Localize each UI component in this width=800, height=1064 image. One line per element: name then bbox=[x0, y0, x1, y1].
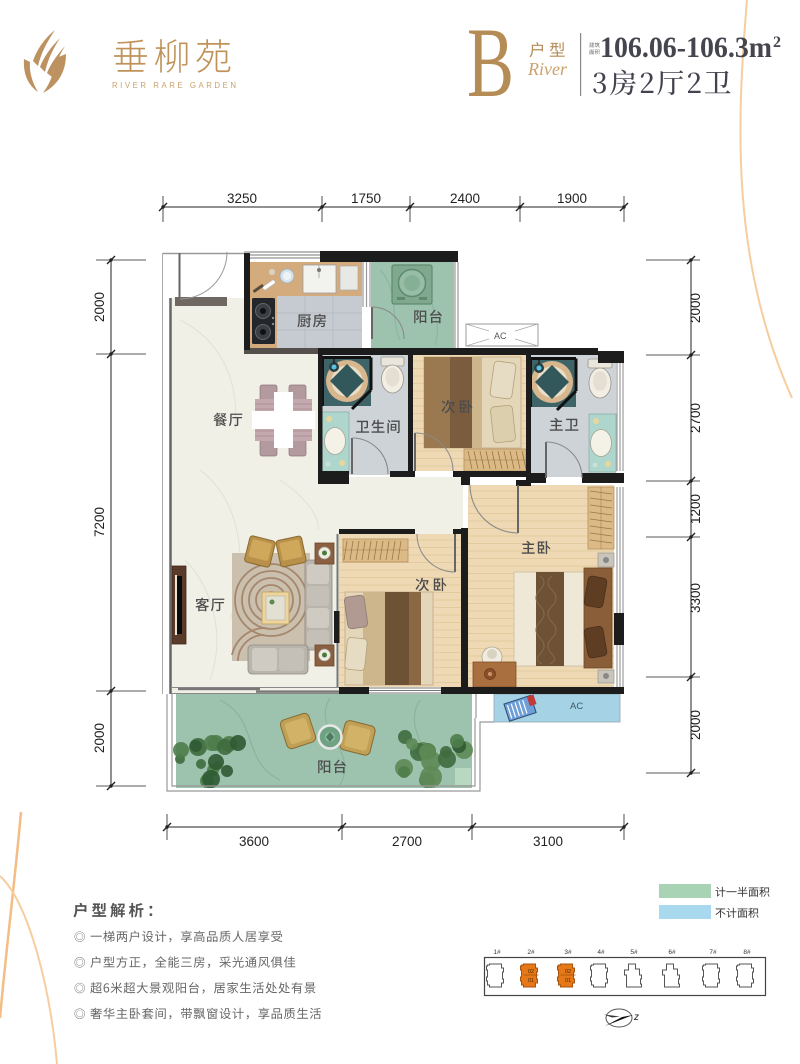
svg-text:2400: 2400 bbox=[450, 191, 480, 206]
svg-text:2000: 2000 bbox=[92, 723, 107, 753]
svg-text:01: 01 bbox=[565, 978, 571, 984]
svg-text:2700: 2700 bbox=[392, 834, 422, 849]
svg-text:4#: 4# bbox=[597, 949, 605, 956]
svg-text:River: River bbox=[527, 59, 568, 79]
svg-text:1750: 1750 bbox=[351, 191, 381, 206]
svg-text:01: 01 bbox=[528, 978, 534, 984]
svg-text:1200: 1200 bbox=[688, 494, 703, 524]
svg-text:1900: 1900 bbox=[557, 191, 587, 206]
svg-text:3#: 3# bbox=[564, 949, 572, 956]
svg-text:02: 02 bbox=[565, 969, 571, 975]
svg-text:02: 02 bbox=[528, 969, 534, 975]
svg-text:2700: 2700 bbox=[688, 403, 703, 433]
svg-text:7200: 7200 bbox=[92, 507, 107, 537]
svg-text:2#: 2# bbox=[527, 949, 535, 956]
svg-text:z: z bbox=[633, 1012, 639, 1023]
svg-text:RIVER RARE GARDEN: RIVER RARE GARDEN bbox=[112, 81, 239, 90]
svg-text:2: 2 bbox=[773, 34, 781, 51]
svg-text:AC: AC bbox=[570, 701, 583, 712]
svg-text:3250: 3250 bbox=[227, 191, 257, 206]
svg-text:6#: 6# bbox=[668, 949, 676, 956]
svg-text:8#: 8# bbox=[743, 949, 751, 956]
svg-text:106.06-106.3m: 106.06-106.3m bbox=[600, 31, 772, 64]
svg-text:7#: 7# bbox=[709, 949, 717, 956]
svg-text:AC: AC bbox=[494, 331, 507, 341]
svg-text:2000: 2000 bbox=[688, 710, 703, 740]
svg-text:5#: 5# bbox=[630, 949, 638, 956]
svg-text:1#: 1# bbox=[493, 949, 501, 956]
svg-text:3300: 3300 bbox=[688, 583, 703, 613]
svg-text:3600: 3600 bbox=[239, 834, 269, 849]
svg-text:3100: 3100 bbox=[533, 834, 563, 849]
svg-text:2000: 2000 bbox=[92, 292, 107, 322]
svg-text:B: B bbox=[467, 7, 514, 118]
svg-text:2000: 2000 bbox=[688, 293, 703, 323]
